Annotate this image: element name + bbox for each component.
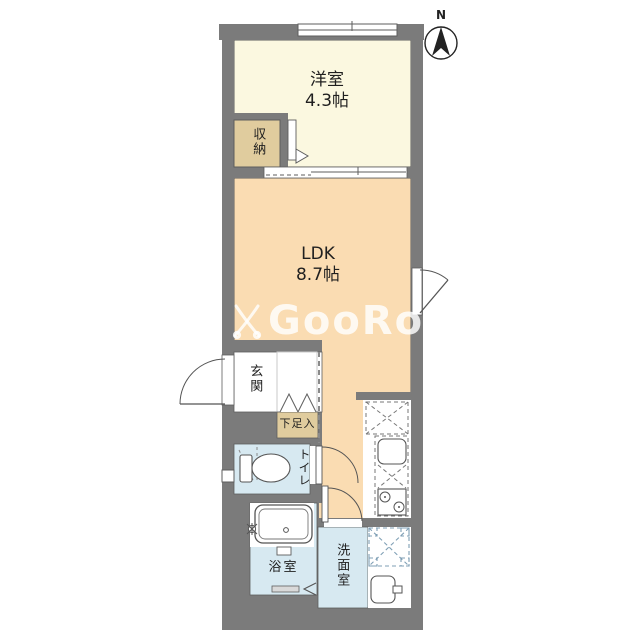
floor-plan: 洋室 4.3帖 LDK 8.7帖 収納 玄関 下足入 トイレ 浴室 洗面室 N … <box>0 0 640 640</box>
north-arrow-icon <box>425 27 457 59</box>
room-label-washroom: 洗面室 <box>333 543 349 588</box>
room-label-western-room: 洋室 4.3帖 <box>257 70 397 113</box>
room-label-ldk: LDK 8.7帖 <box>248 244 388 287</box>
room-label-shoe-box: 下足入 <box>277 417 318 431</box>
sliding-door-icon <box>264 167 407 178</box>
wall-east <box>411 24 423 630</box>
toilet-window-icon <box>222 470 234 482</box>
wall-closet-right <box>280 113 288 167</box>
wall-ldk-genkan <box>234 340 322 352</box>
ldk-east-door-icon <box>412 268 448 315</box>
bath-faucet-icon <box>247 523 257 535</box>
entrance-door-icon <box>180 355 234 405</box>
ldk-name: LDK <box>248 244 388 265</box>
stove-icon <box>378 489 406 515</box>
room-label-entrance: 玄関 <box>246 364 262 394</box>
wall-closet-top <box>234 113 288 120</box>
kitchen-sink-icon <box>378 439 406 464</box>
western-room-size: 4.3帖 <box>257 91 397 112</box>
wall-kitchen-stub <box>356 392 411 400</box>
room-label-bathroom: 浴室 <box>250 560 317 576</box>
wall-west <box>222 24 234 630</box>
wall-bottom <box>222 616 423 630</box>
window-icon <box>298 21 397 36</box>
room-label-toilet: トイレ <box>296 448 311 487</box>
western-room-name: 洋室 <box>257 70 397 91</box>
bath-counter-step <box>277 547 291 555</box>
compass-north-label: N <box>433 8 449 23</box>
room-label-closet: 収納 <box>249 127 265 157</box>
wall-toilet-bottom <box>234 494 322 503</box>
ldk-size: 8.7帖 <box>248 265 388 286</box>
wall-washroom-bottom <box>318 608 411 616</box>
wall-bath-bottom <box>234 595 318 616</box>
